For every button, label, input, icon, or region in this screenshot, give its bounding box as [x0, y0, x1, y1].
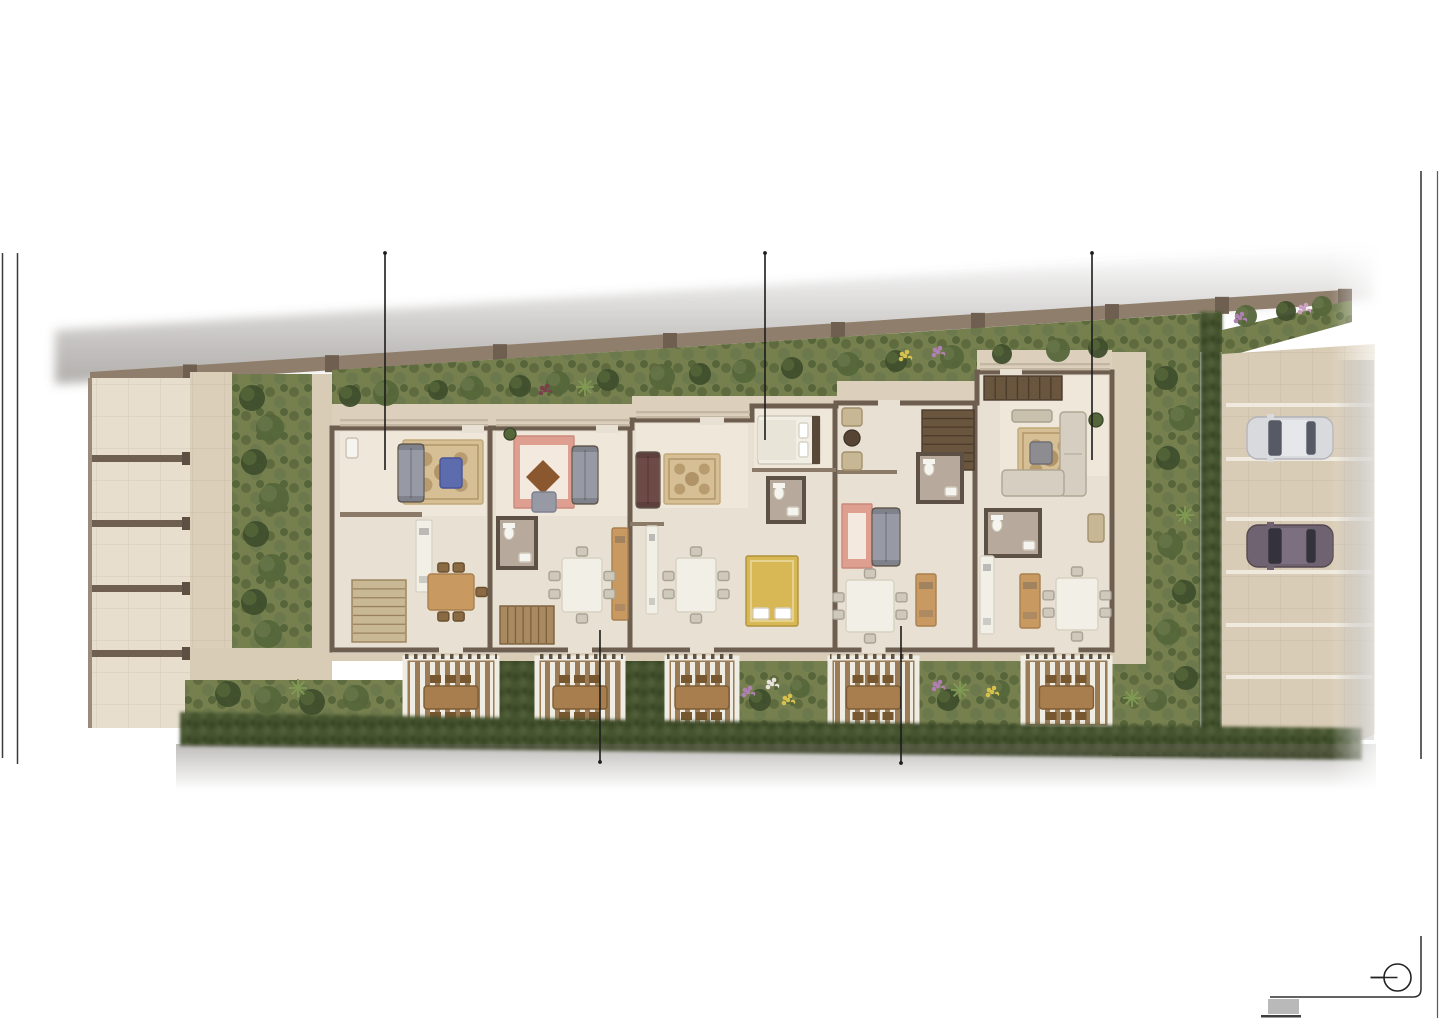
rear-window: [1307, 422, 1315, 454]
sofa-armrest: [636, 502, 660, 508]
flower-cluster: [766, 685, 771, 690]
outdoor-chair: [853, 712, 864, 720]
dining-chair: [453, 563, 464, 572]
left-walkway: [312, 374, 332, 652]
dining-table: [562, 558, 602, 612]
bush-highlight: [1173, 582, 1186, 595]
interior-partition: [630, 522, 664, 526]
outdoor-dining-table: [675, 686, 729, 709]
toilet-tank: [991, 515, 1003, 520]
bathroom-sink: [787, 507, 799, 516]
potted-plant: [1089, 413, 1103, 427]
site-plan-rendering: [0, 0, 1440, 1018]
toilet: [774, 487, 784, 500]
stall-divider-pier: [182, 452, 191, 465]
pergola-beam: [980, 368, 1110, 370]
bush-highlight: [1089, 340, 1100, 351]
terrace-divider-hedge: [623, 654, 667, 728]
bush-highlight: [1158, 534, 1172, 548]
flower-cluster: [932, 687, 937, 692]
flower-cluster: [540, 386, 545, 391]
stall-divider-wall: [92, 650, 190, 657]
dining-chair: [896, 610, 907, 619]
flower-cluster: [987, 688, 992, 693]
bush-highlight: [261, 485, 278, 502]
outdoor-chair: [883, 675, 894, 683]
outdoor-chair: [589, 675, 600, 683]
callout-cap: [899, 761, 903, 765]
coffee-table-gray: [1030, 442, 1052, 464]
dining-chair: [663, 572, 674, 581]
outdoor-chair: [1046, 712, 1057, 720]
rug-medallion: [699, 464, 710, 475]
outdoor-chair: [696, 712, 707, 720]
right-walkway: [1112, 352, 1146, 664]
bed-pillow: [799, 423, 808, 438]
bush-highlight: [1313, 298, 1324, 309]
bush-highlight: [242, 451, 256, 465]
wicker-chair: [842, 452, 862, 470]
dining-chair: [549, 590, 560, 599]
outdoor-chair: [1076, 675, 1087, 683]
sofa-armrest: [872, 508, 900, 514]
sectional-sofa: [1002, 470, 1064, 496]
side-mirror: [1267, 458, 1274, 462]
sofa-armrest: [398, 444, 424, 450]
callout-cap: [383, 251, 387, 255]
pergola-beam-row: [405, 654, 497, 659]
flower-cluster: [1240, 312, 1245, 317]
boundary-wall-pier: [1105, 304, 1119, 321]
bush-highlight: [374, 382, 388, 396]
footer-thumbnail-block: [1268, 999, 1299, 1014]
pergola-beam-row: [667, 654, 737, 659]
pergola-beam: [496, 419, 630, 421]
flower-cluster: [986, 693, 991, 698]
flower-cluster: [933, 348, 938, 353]
bush-highlight: [938, 691, 950, 703]
toilet: [504, 527, 514, 540]
dining-table: [428, 574, 474, 610]
wicker-chair: [842, 408, 862, 426]
round-table: [844, 430, 860, 446]
pergola-beam: [636, 411, 750, 413]
side-mirror: [1267, 522, 1274, 526]
dining-chair: [691, 614, 702, 623]
dining-chair: [476, 588, 487, 597]
sink: [346, 438, 358, 458]
sofa-armrest: [872, 560, 900, 566]
dining-table: [676, 558, 716, 612]
dining-chair: [1100, 608, 1111, 617]
bed-headboard: [812, 416, 820, 464]
boundary-wall-pier: [971, 313, 985, 330]
compass-icon: [1371, 964, 1412, 991]
bench: [1012, 410, 1052, 422]
coffee-table-blue: [440, 458, 462, 488]
outdoor-dining-table: [424, 686, 478, 709]
flower-cluster: [743, 688, 748, 693]
dining-chair: [663, 590, 674, 599]
bush-highlight: [240, 387, 254, 401]
appliance: [649, 598, 655, 605]
flower-cluster: [899, 357, 904, 362]
flower-leaf: [1242, 320, 1246, 324]
dining-chair: [691, 547, 702, 556]
interior-partition: [340, 512, 422, 517]
pergola-beam-row: [830, 654, 917, 659]
kitchen-island: [916, 574, 936, 626]
flower-cluster: [788, 694, 793, 699]
dining-chair: [1072, 567, 1083, 576]
wicker-chair: [1088, 514, 1104, 542]
car-roof: [1281, 420, 1307, 456]
bush-highlight: [257, 416, 272, 431]
toilet-tank: [923, 459, 935, 464]
bush-highlight: [1175, 668, 1188, 681]
flower-cluster: [782, 701, 787, 706]
outdoor-chair: [681, 675, 692, 683]
dining-chair: [438, 563, 449, 572]
windshield: [1269, 421, 1281, 455]
flower-cluster: [545, 384, 550, 389]
rear-window: [1307, 530, 1315, 562]
dining-table: [1056, 578, 1098, 630]
flower-cluster: [748, 686, 753, 691]
flower-cluster: [1299, 305, 1304, 310]
dining-chair: [577, 614, 588, 623]
bush-highlight: [1156, 621, 1170, 635]
callout-cap: [1090, 251, 1094, 255]
bush-highlight: [1155, 368, 1168, 381]
outdoor-chair: [460, 675, 471, 683]
side-mirror: [1267, 414, 1274, 418]
potted-plant: [504, 428, 516, 440]
rug-medallion: [685, 472, 699, 486]
footer-rule: [1261, 1015, 1301, 1018]
bush-highlight: [690, 365, 702, 377]
dining-chair: [1072, 632, 1083, 641]
windshield: [1269, 529, 1281, 563]
car-roof: [1281, 528, 1307, 564]
salmon-rug-center: [848, 513, 866, 559]
outdoor-chair: [681, 712, 692, 720]
bush-highlight: [791, 680, 802, 691]
dining-chair: [1100, 591, 1111, 600]
flower-leaf: [907, 358, 911, 362]
dining-chair: [833, 610, 844, 619]
appliance: [919, 610, 933, 617]
outdoor-chair: [559, 675, 570, 683]
flower-cluster: [1235, 314, 1240, 319]
flower-cluster: [938, 346, 943, 351]
driveway-tiles: [90, 378, 190, 728]
appliance: [983, 564, 991, 571]
dining-chair: [438, 612, 449, 621]
bathroom-sink: [945, 487, 957, 496]
bush-highlight: [242, 591, 256, 605]
flower-cluster: [992, 686, 997, 691]
flower-cluster: [1304, 303, 1309, 308]
right-page-fade: [1330, 220, 1440, 806]
outdoor-chair: [868, 712, 879, 720]
sofa-armrest: [572, 446, 598, 452]
callout-cap: [598, 760, 602, 764]
outdoor-chair: [430, 675, 441, 683]
dining-chair: [833, 593, 844, 602]
rear-garden-patch: [737, 656, 830, 728]
bed-pillow: [753, 608, 769, 619]
bush-highlight: [886, 352, 898, 364]
brochure-page: [0, 0, 1440, 1018]
flower-cluster: [767, 680, 772, 685]
outdoor-dining-table: [847, 686, 901, 709]
interior-partition: [752, 468, 836, 472]
door-opening: [700, 417, 724, 425]
sofa-armrest: [636, 452, 660, 458]
door-opening: [462, 425, 484, 433]
flower-cluster: [938, 680, 943, 685]
bush-highlight: [650, 366, 664, 380]
bush-highlight: [216, 683, 230, 697]
toilet: [992, 519, 1002, 532]
rug-medallion: [674, 464, 685, 475]
bush-highlight: [1157, 448, 1170, 461]
bed-pillow: [799, 442, 808, 457]
dining-chair: [577, 547, 588, 556]
flower-cluster: [783, 696, 788, 701]
appliance: [649, 534, 655, 541]
toilet-tank: [503, 523, 515, 528]
car-light: [1247, 414, 1333, 462]
appliance: [1023, 612, 1037, 619]
boundary-wall-pier: [663, 333, 677, 350]
bush-highlight: [1047, 340, 1060, 353]
hedge-drop-shadow: [176, 744, 1376, 790]
outdoor-chair: [589, 712, 600, 720]
dining-chair: [718, 572, 729, 581]
flower-cluster: [932, 353, 937, 358]
stall-divider-pier: [182, 582, 191, 595]
bush-highlight: [259, 556, 274, 571]
flower-leaf: [750, 694, 754, 698]
appliance: [419, 528, 429, 535]
dining-chair: [453, 612, 464, 621]
armchair: [532, 492, 556, 512]
flower-leaf: [790, 702, 794, 706]
bush-highlight: [993, 346, 1004, 357]
dining-chair: [1043, 591, 1054, 600]
flower-leaf: [1306, 311, 1310, 315]
flower-cluster: [1234, 319, 1239, 324]
outdoor-chair: [574, 675, 585, 683]
flower-cluster: [933, 682, 938, 687]
stall-divider-wall: [92, 455, 190, 462]
appliance: [919, 582, 933, 589]
bush-highlight: [837, 354, 850, 367]
outdoor-chair: [883, 712, 894, 720]
bush-highlight: [340, 387, 352, 399]
dining-chair: [549, 572, 560, 581]
outdoor-chair: [696, 675, 707, 683]
bathroom-sink: [519, 553, 531, 562]
bush-highlight: [598, 371, 610, 383]
flower-cluster: [742, 693, 747, 698]
flower-cluster: [900, 352, 905, 357]
outdoor-chair: [853, 675, 864, 683]
callout-cap: [763, 251, 767, 255]
door-opening: [596, 425, 618, 433]
boundary-wall-pier: [831, 322, 845, 339]
bush-highlight: [461, 378, 474, 391]
flower-leaf: [940, 354, 944, 358]
outdoor-chair: [868, 675, 879, 683]
bed-blanket: [758, 420, 796, 460]
bush-highlight: [255, 688, 270, 703]
dining-chair: [604, 572, 615, 581]
bathroom-sink: [1023, 541, 1035, 550]
toilet-tank: [773, 483, 785, 488]
bottom-left-walkway: [190, 648, 332, 682]
flower-cluster: [539, 391, 544, 396]
stall-divider-wall: [92, 585, 190, 592]
door-opening: [878, 400, 900, 408]
pergola-beam-row: [537, 654, 623, 659]
toilet: [924, 463, 934, 476]
rug-medallion: [674, 484, 685, 495]
outdoor-chair: [445, 675, 456, 683]
outdoor-chair: [711, 675, 722, 683]
outdoor-dining-table: [1040, 686, 1094, 709]
side-mirror: [1267, 566, 1274, 570]
boundary-wall-pier: [325, 355, 339, 372]
dining-chair: [604, 590, 615, 599]
appliance: [983, 618, 991, 625]
dining-chair: [718, 590, 729, 599]
bush-highlight: [782, 359, 794, 371]
outdoor-chair: [1061, 675, 1072, 683]
appliance: [1023, 582, 1037, 589]
bush-highlight: [429, 382, 440, 393]
bush-highlight: [1146, 691, 1158, 703]
outdoor-chair: [711, 712, 722, 720]
bush-highlight: [244, 523, 258, 537]
bush-highlight: [510, 377, 522, 389]
boundary-wall-pier: [1215, 297, 1229, 314]
boundary-wall-pier: [493, 344, 507, 361]
outdoor-dining-table: [553, 686, 607, 709]
flower-leaf: [994, 694, 998, 698]
appliance: [615, 536, 625, 543]
sofa-armrest: [398, 496, 424, 502]
bush-highlight: [1170, 407, 1184, 421]
pergola-beam: [340, 419, 488, 421]
rug-medallion: [699, 484, 710, 495]
right-hedge-row: [1200, 312, 1222, 756]
flower-leaf: [774, 686, 778, 690]
stall-divider-pier: [182, 517, 191, 530]
stall-divider-pier: [182, 647, 191, 660]
outdoor-chair: [1076, 712, 1087, 720]
flower-leaf: [940, 688, 944, 692]
dining-chair: [865, 634, 876, 643]
bush-highlight: [1277, 303, 1288, 314]
flower-cluster: [772, 678, 777, 683]
flower-cluster: [905, 350, 910, 355]
outdoor-chair: [574, 712, 585, 720]
bush-highlight: [255, 622, 270, 637]
sofa-armrest: [572, 498, 598, 504]
bush-highlight: [733, 361, 746, 374]
bush-highlight: [344, 687, 358, 701]
flower-leaf: [547, 392, 551, 396]
outdoor-chair: [1046, 675, 1057, 683]
appliance: [615, 604, 625, 611]
driveway-left-edge: [88, 378, 92, 728]
pergola-beam-row: [1023, 654, 1110, 659]
car-dark: [1247, 522, 1333, 570]
bed-pillow: [775, 608, 791, 619]
dining-chair: [896, 593, 907, 602]
flower-cluster: [1298, 310, 1303, 315]
outdoor-chair: [1061, 712, 1072, 720]
pergola-beam: [636, 416, 750, 418]
stall-divider-wall: [92, 520, 190, 527]
bush-highlight: [547, 373, 560, 386]
terrace-divider-hedge: [497, 654, 537, 728]
dining-table: [846, 580, 894, 632]
dining-chair: [865, 569, 876, 578]
dining-chair: [1043, 608, 1054, 617]
